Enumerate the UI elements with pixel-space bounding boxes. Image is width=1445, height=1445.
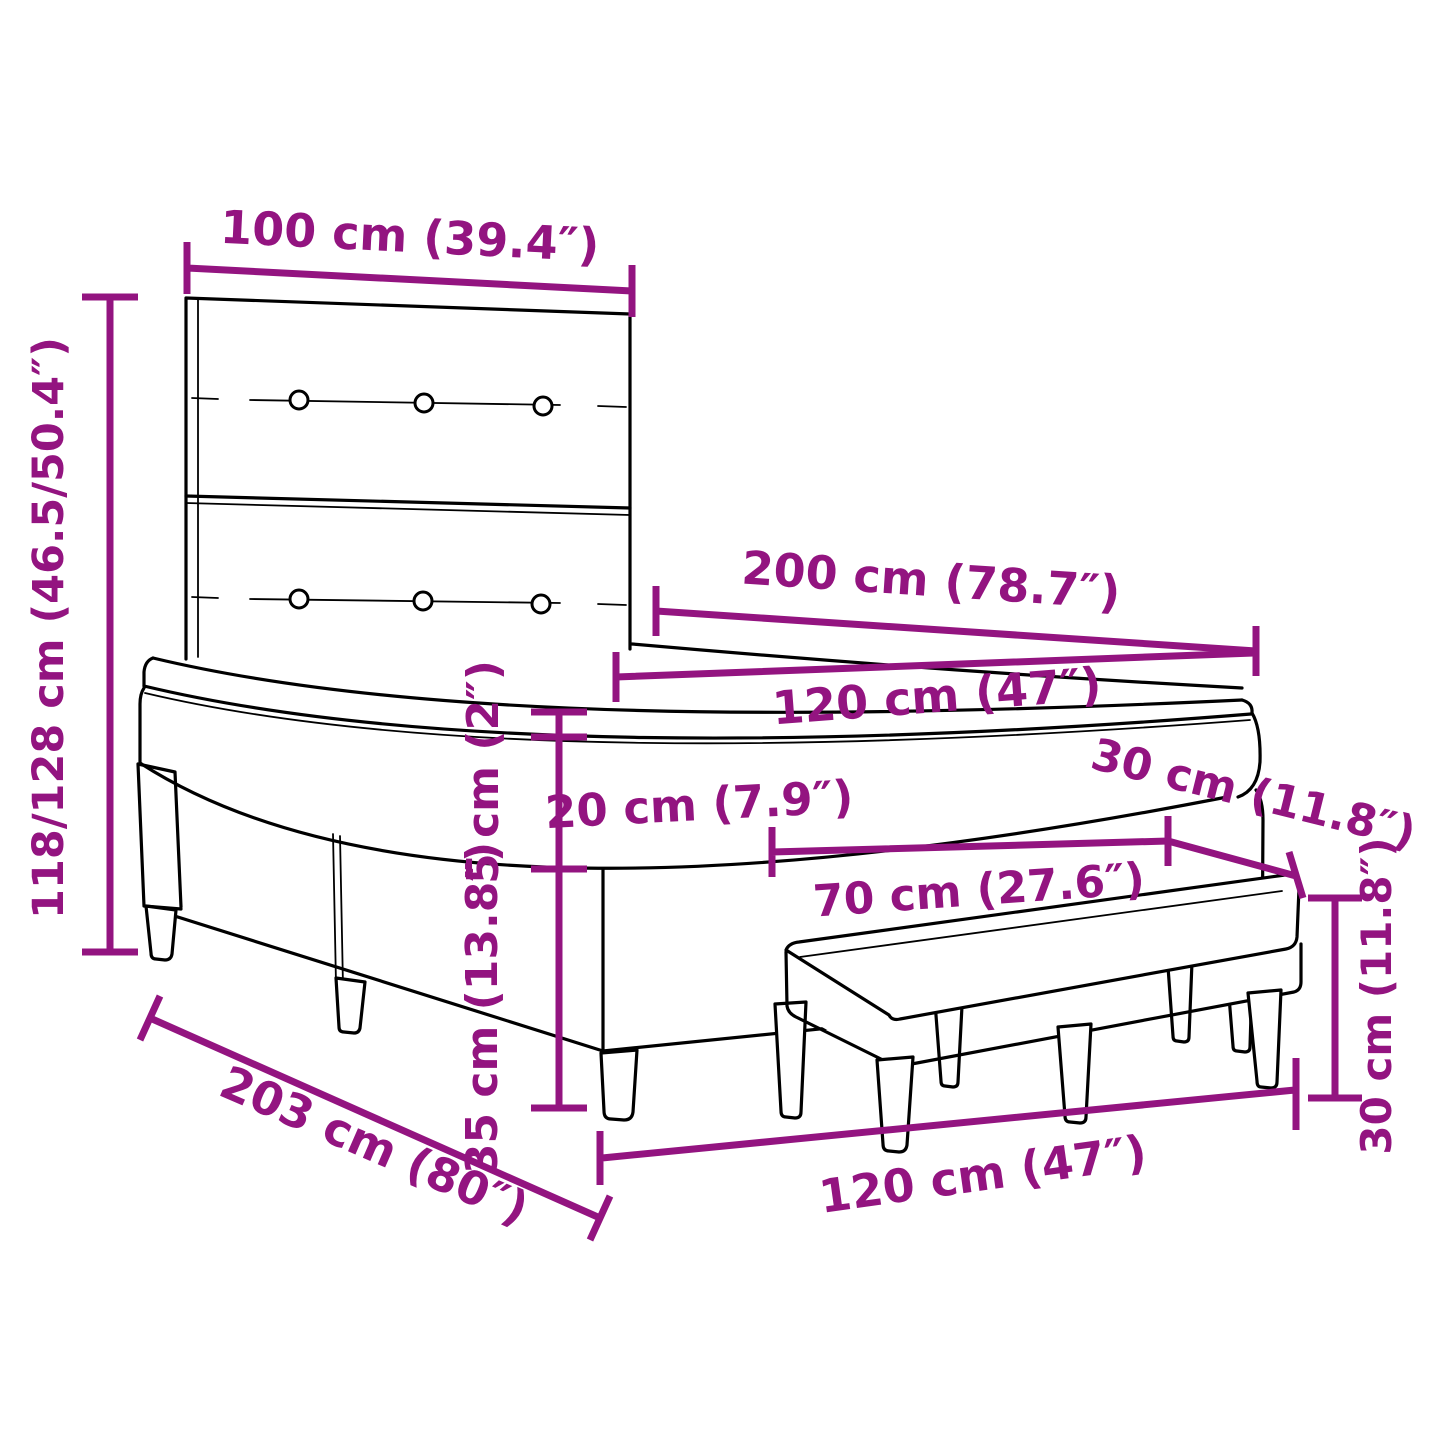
dim-bench-height-label: 30 cm (11.8″) — [1352, 837, 1401, 1154]
base-head-face — [138, 764, 181, 909]
dim-height-stack-line — [531, 712, 587, 1108]
base-panel-seam — [333, 834, 343, 986]
stitch-line — [192, 398, 626, 407]
product-dimension-diagram: 100 cm (39.4″) 118/128 cm (46.5/50.4″) 2… — [0, 0, 1445, 1445]
tufting-button — [290, 391, 308, 409]
dim-overall-height: 118/128 cm (46.5/50.4″) — [24, 297, 138, 952]
dim-bench-height: 30 cm (11.8″) — [1308, 837, 1401, 1154]
headboard — [186, 298, 630, 659]
bed-leg-head — [146, 906, 176, 960]
tufting-row-lower — [192, 590, 626, 613]
dim-mattress-width: 120 cm (47″) — [616, 652, 1254, 735]
dim-overall-height-label: 118/128 cm (46.5/50.4″) — [24, 337, 74, 919]
base-bottom-front-edge — [146, 907, 603, 1051]
dim-overall-height-line — [82, 297, 138, 952]
bed-leg-foot — [601, 1050, 637, 1120]
dim-mattress-length-label: 200 cm (78.7″) — [740, 541, 1122, 620]
tufting-button — [414, 592, 432, 610]
tufting-button — [415, 394, 433, 412]
tufting-button — [534, 397, 552, 415]
bed-drawing — [138, 298, 1302, 1152]
tufting-row-upper — [192, 391, 626, 415]
headboard-divider — [186, 496, 630, 508]
bench-leg-front-right — [1248, 990, 1281, 1088]
dim-headboard-width-label: 100 cm (39.4″) — [219, 200, 601, 272]
tufting-button — [532, 595, 550, 613]
topper-right-cap — [1242, 700, 1252, 713]
bench-leg-front-left — [877, 1057, 913, 1152]
stitch-line — [192, 597, 626, 605]
mattress-left-edge — [140, 688, 144, 763]
dim-mattress-height-label: 20 cm (7.9″) — [544, 770, 855, 839]
bed-diagram-canvas: 100 cm (39.4″) 118/128 cm (46.5/50.4″) 2… — [0, 0, 1445, 1445]
dim-base-height-label: 35 cm (13.8″) — [457, 842, 508, 1174]
headboard-outline — [186, 298, 630, 659]
topper-left-cap — [144, 658, 153, 686]
dimension-annotations: 100 cm (39.4″) 118/128 cm (46.5/50.4″) 2… — [24, 200, 1421, 1240]
bed-leg-middle — [336, 978, 365, 1033]
tufting-button — [290, 590, 308, 608]
dim-base-width-label: 120 cm (47″) — [816, 1124, 1150, 1223]
